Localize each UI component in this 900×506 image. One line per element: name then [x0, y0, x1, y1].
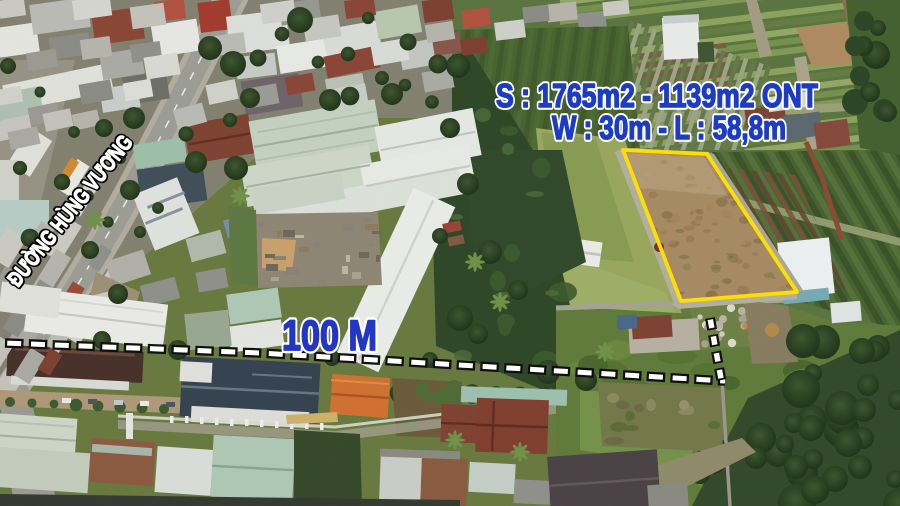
svg-text:100 M: 100 M — [282, 312, 377, 360]
svg-text:W : 30m - L : 58,8m: W : 30m - L : 58,8m — [552, 109, 786, 146]
